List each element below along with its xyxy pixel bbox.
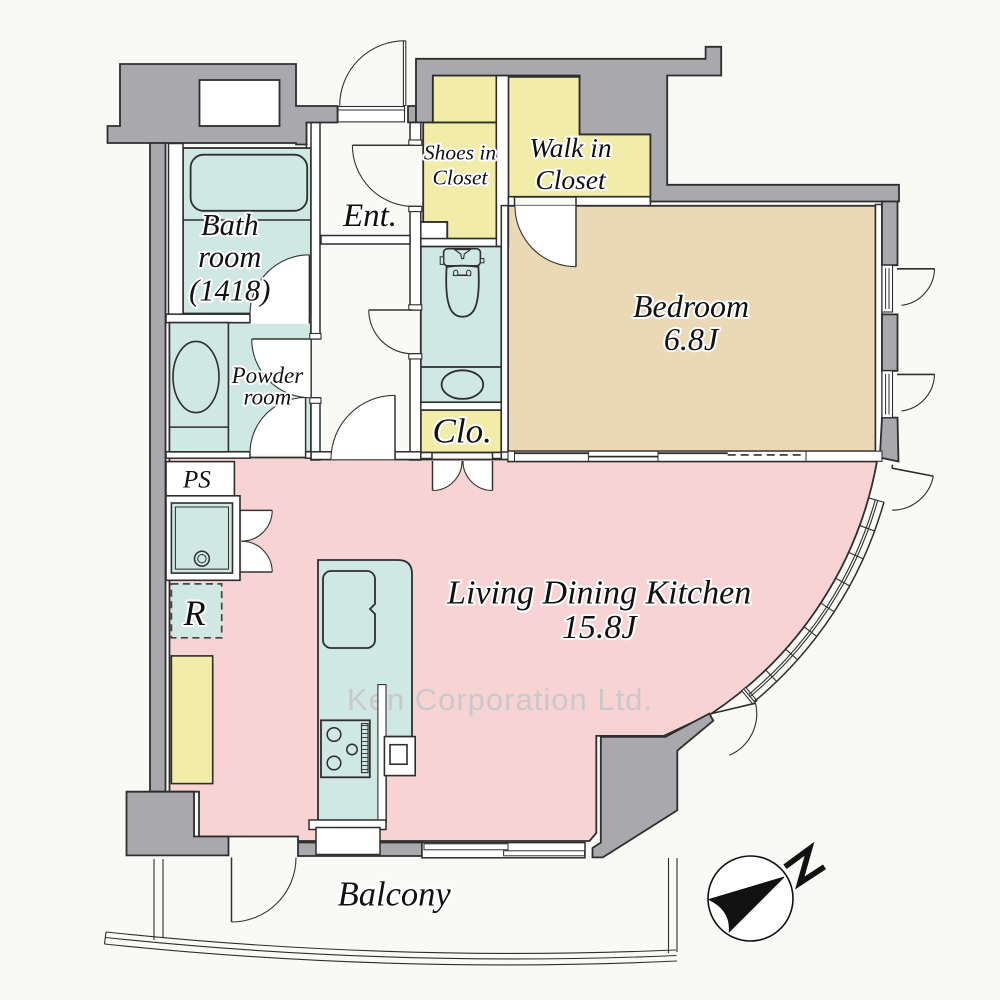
svg-text:Closet: Closet [535,164,607,195]
svg-text:Balcony: Balcony [338,876,452,914]
svg-text:Clo.: Clo. [433,411,492,450]
svg-text:(1418): (1418) [189,274,270,308]
svg-text:room: room [244,385,292,410]
svg-text:6.8J: 6.8J [664,321,720,357]
svg-text:PS: PS [182,467,211,494]
svg-text:Bedroom: Bedroom [633,288,749,324]
svg-text:15.8J: 15.8J [562,609,639,646]
svg-text:room: room [198,240,261,274]
svg-text:Living Dining Kitchen: Living Dining Kitchen [446,575,751,612]
svg-text:Ent.: Ent. [342,198,397,234]
svg-text:R: R [183,593,206,633]
svg-text:Ken Corporation Ltd.: Ken Corporation Ltd. [347,682,653,717]
svg-text:Bath: Bath [201,208,259,242]
svg-text:Closet: Closet [433,165,489,189]
svg-text:Shoes in: Shoes in [424,141,496,165]
svg-text:Walk in: Walk in [529,132,611,163]
